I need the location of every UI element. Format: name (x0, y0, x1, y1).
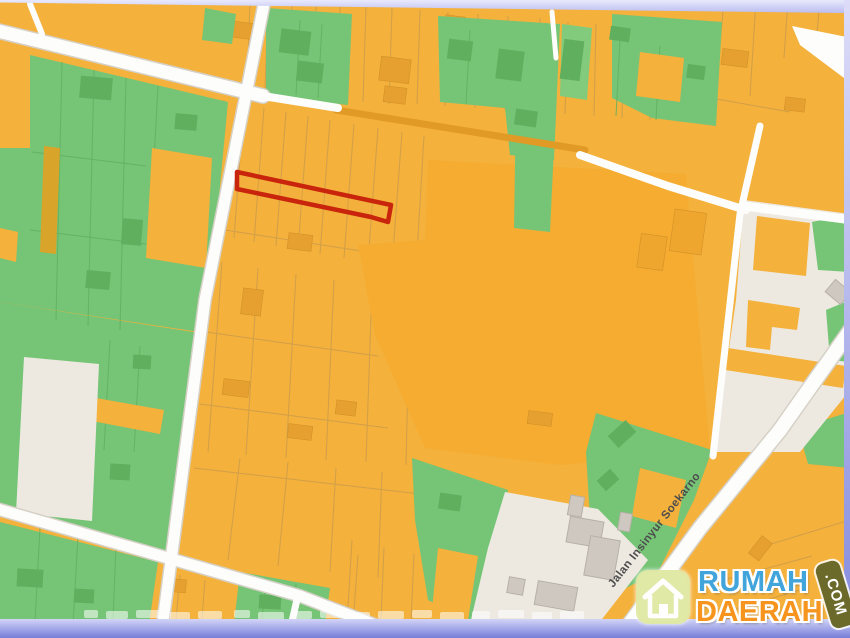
watermark-logo: RUMAH DAERAH .COM (630, 560, 850, 638)
house-icon (634, 566, 692, 628)
watermark-brand-line1: RUMAH (698, 568, 808, 597)
watermark-brand-line2: DAERAH (696, 598, 823, 627)
map-viewport[interactable]: Jalan Insinyur Soekarno (0, 0, 850, 638)
zoning-map-canvas[interactable]: Jalan Insinyur Soekarno (0, 0, 850, 638)
